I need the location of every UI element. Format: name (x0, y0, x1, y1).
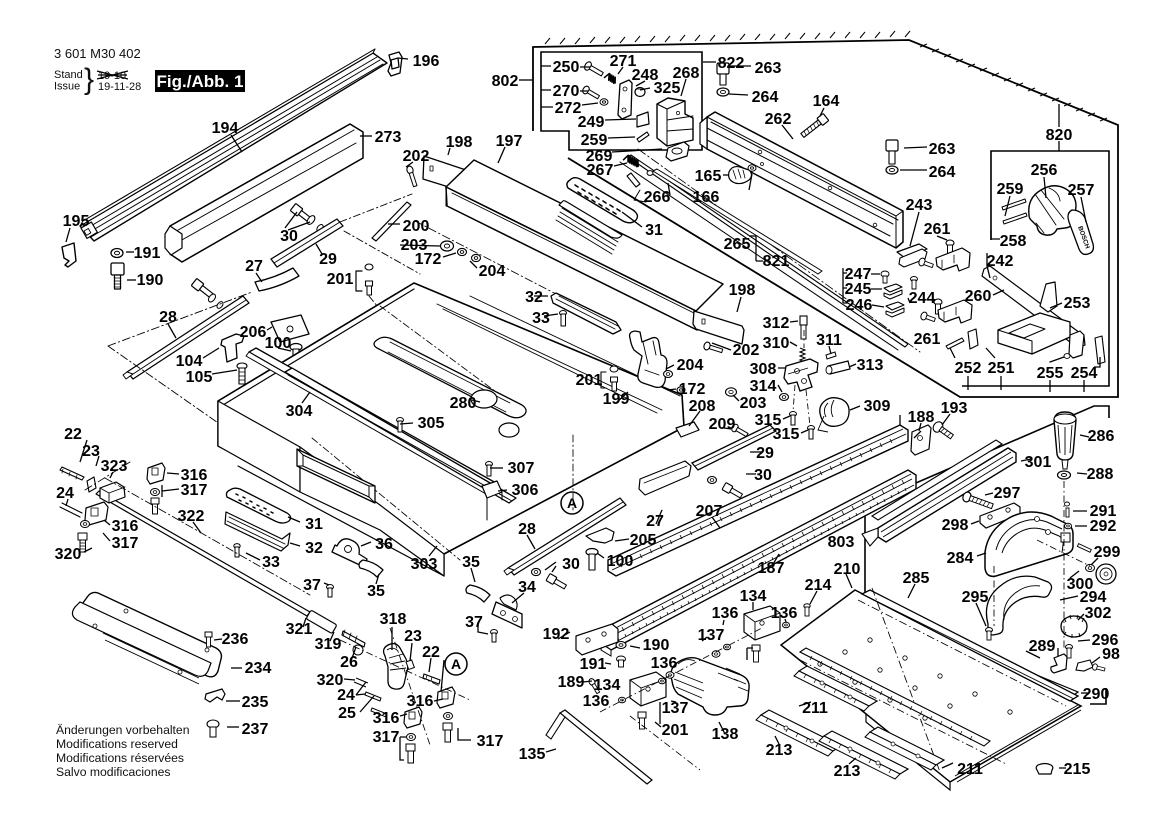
svg-text:302: 302 (1085, 605, 1112, 622)
svg-text:311: 311 (816, 332, 842, 349)
svg-text:29: 29 (756, 445, 774, 462)
svg-text:243: 243 (906, 197, 933, 214)
svg-text:191: 191 (134, 245, 161, 262)
svg-text:134: 134 (740, 588, 767, 605)
svg-text:138: 138 (712, 726, 739, 743)
svg-text:28: 28 (159, 309, 177, 326)
svg-text:19-11-28: 19-11-28 (98, 81, 141, 93)
svg-text:189: 189 (558, 674, 585, 691)
svg-text:22: 22 (422, 644, 440, 661)
svg-text:286: 286 (1088, 428, 1115, 445)
svg-text:267: 267 (587, 162, 614, 179)
svg-text:820: 820 (1046, 127, 1073, 144)
svg-text:194: 194 (212, 120, 239, 137)
svg-text:136: 136 (771, 605, 798, 622)
svg-text:208: 208 (689, 398, 716, 415)
svg-text:284: 284 (947, 550, 974, 567)
svg-text:202: 202 (733, 342, 760, 359)
svg-text:295: 295 (962, 589, 989, 606)
svg-text:192: 192 (543, 626, 570, 643)
svg-text:213: 213 (834, 763, 861, 780)
svg-text:255: 255 (1037, 365, 1064, 382)
svg-text:325: 325 (654, 80, 681, 97)
svg-text:32: 32 (525, 289, 543, 306)
svg-text:A: A (567, 495, 577, 511)
svg-text:37: 37 (465, 614, 483, 631)
svg-text:265: 265 (724, 236, 751, 253)
svg-text:Salvo modificaciones: Salvo modificaciones (56, 765, 170, 779)
svg-text:31: 31 (305, 516, 323, 533)
svg-text:98: 98 (1102, 646, 1120, 663)
svg-text:261: 261 (924, 221, 951, 238)
svg-text:203: 203 (740, 395, 767, 412)
svg-text:309: 309 (864, 398, 891, 415)
svg-text:204: 204 (677, 357, 704, 374)
svg-text:316: 316 (373, 710, 400, 727)
svg-text:166: 166 (693, 189, 720, 206)
svg-text:288: 288 (1087, 466, 1114, 483)
svg-text:250: 250 (553, 59, 580, 76)
svg-text:206: 206 (240, 324, 267, 341)
svg-text:Änderungen vorbehalten: Änderungen vorbehalten (56, 723, 190, 737)
svg-text:172: 172 (679, 381, 706, 398)
svg-text:201: 201 (662, 722, 689, 739)
svg-text:260: 260 (965, 288, 992, 305)
svg-text:197: 197 (496, 133, 523, 150)
svg-text:323: 323 (101, 458, 128, 475)
svg-text:317: 317 (477, 733, 504, 750)
svg-text:105: 105 (186, 369, 213, 386)
svg-text:298: 298 (942, 517, 969, 534)
svg-text:30: 30 (754, 467, 772, 484)
svg-text:198: 198 (446, 134, 473, 151)
svg-text:205: 205 (630, 532, 657, 549)
svg-text:190: 190 (643, 637, 670, 654)
svg-text:318: 318 (380, 611, 407, 628)
svg-text:803: 803 (828, 534, 855, 551)
svg-text:A: A (451, 656, 461, 672)
svg-text:136: 136 (651, 655, 678, 672)
svg-text:294: 294 (1080, 589, 1107, 606)
svg-text:215: 215 (1064, 761, 1091, 778)
svg-text:23: 23 (404, 628, 422, 645)
svg-text:249: 249 (578, 114, 605, 131)
svg-text:262: 262 (765, 111, 792, 128)
svg-text:}: } (84, 63, 94, 96)
svg-text:264: 264 (752, 89, 779, 106)
svg-text:100: 100 (265, 335, 292, 352)
svg-text:31: 31 (645, 222, 663, 239)
svg-text:25: 25 (338, 705, 356, 722)
svg-text:195: 195 (63, 213, 90, 230)
svg-text:236: 236 (222, 631, 249, 648)
svg-text:22: 22 (64, 426, 82, 443)
svg-text:30: 30 (562, 556, 580, 573)
svg-text:312: 312 (763, 315, 790, 332)
svg-text:165: 165 (695, 168, 722, 185)
svg-text:310: 310 (763, 335, 790, 352)
svg-text:246: 246 (846, 297, 873, 314)
svg-text:258: 258 (1000, 233, 1027, 250)
svg-text:209: 209 (709, 416, 736, 433)
svg-text:Issue: Issue (54, 81, 80, 93)
svg-text:214: 214 (805, 577, 832, 594)
svg-text:257: 257 (1068, 182, 1095, 199)
svg-text:202: 202 (403, 148, 430, 165)
svg-text:Fig./Abb. 1: Fig./Abb. 1 (157, 72, 244, 91)
svg-text:30: 30 (280, 228, 298, 245)
svg-text:23: 23 (82, 443, 100, 460)
svg-text:210: 210 (834, 561, 861, 578)
svg-text:27: 27 (245, 258, 263, 275)
svg-text:244: 244 (909, 290, 936, 307)
svg-text:27: 27 (646, 513, 664, 530)
svg-text:201: 201 (327, 271, 354, 288)
svg-text:Modifications reserved: Modifications reserved (56, 737, 178, 751)
svg-text:256: 256 (1031, 162, 1058, 179)
svg-text:200: 200 (403, 218, 430, 235)
svg-text:320: 320 (55, 546, 82, 563)
svg-text:322: 322 (178, 508, 205, 525)
svg-text:316: 316 (112, 518, 139, 535)
svg-text:263: 263 (929, 141, 956, 158)
svg-text:137: 137 (698, 627, 725, 644)
svg-text:135: 135 (519, 746, 546, 763)
svg-text:280: 280 (450, 395, 477, 412)
svg-text:321: 321 (286, 621, 313, 638)
svg-text:273: 273 (375, 129, 402, 146)
svg-text:234: 234 (245, 660, 272, 677)
svg-text:290: 290 (1083, 686, 1110, 703)
svg-text:188: 188 (908, 409, 935, 426)
svg-text:301: 301 (1025, 454, 1052, 471)
svg-text:259: 259 (997, 181, 1024, 198)
svg-text:305: 305 (418, 415, 445, 432)
svg-text:303: 303 (411, 556, 438, 573)
svg-text:207: 207 (696, 503, 723, 520)
svg-text:26: 26 (340, 654, 358, 671)
svg-text:136: 136 (583, 693, 610, 710)
svg-text:317: 317 (181, 482, 208, 499)
svg-text:29: 29 (319, 251, 337, 268)
svg-text:299: 299 (1094, 544, 1121, 561)
svg-text:193: 193 (941, 400, 968, 417)
svg-text:304: 304 (286, 403, 313, 420)
svg-text:190: 190 (137, 272, 164, 289)
svg-text:261: 261 (914, 331, 941, 348)
svg-text:822: 822 (718, 55, 745, 72)
svg-text:37: 37 (303, 577, 321, 594)
svg-text:308: 308 (750, 361, 777, 378)
svg-text:315: 315 (773, 426, 800, 443)
svg-text:316: 316 (407, 693, 434, 710)
svg-text:Stand: Stand (54, 69, 83, 81)
svg-text:36: 36 (375, 536, 393, 553)
svg-text:251: 251 (988, 360, 1015, 377)
svg-text:24: 24 (56, 485, 74, 502)
svg-text:285: 285 (903, 570, 930, 587)
svg-text:263: 263 (755, 60, 782, 77)
svg-text:199: 199 (603, 391, 630, 408)
svg-text:317: 317 (373, 729, 400, 746)
svg-text:28: 28 (518, 521, 536, 538)
svg-text:313: 313 (857, 357, 884, 374)
svg-text:259: 259 (581, 132, 608, 149)
svg-text:187: 187 (758, 560, 785, 577)
svg-text:211: 211 (802, 700, 828, 717)
svg-text:242: 242 (987, 253, 1014, 270)
svg-text:211: 211 (957, 761, 983, 778)
svg-text:104: 104 (176, 353, 203, 370)
svg-text:196: 196 (413, 53, 440, 70)
svg-text:319: 319 (315, 636, 342, 653)
svg-text:237: 237 (242, 721, 269, 738)
svg-text:317: 317 (112, 535, 139, 552)
svg-text:270: 270 (553, 83, 580, 100)
svg-text:164: 164 (813, 93, 840, 110)
svg-text:191: 191 (580, 656, 607, 673)
svg-text:134: 134 (594, 677, 621, 694)
svg-text:32: 32 (305, 540, 323, 557)
svg-text:Modifications réservées: Modifications réservées (56, 751, 184, 765)
svg-text:289: 289 (1029, 638, 1056, 655)
svg-text:235: 235 (242, 694, 269, 711)
svg-text:297: 297 (994, 485, 1021, 502)
svg-text:204: 204 (479, 263, 506, 280)
svg-text:33: 33 (262, 554, 280, 571)
svg-text:821: 821 (763, 253, 790, 270)
svg-text:253: 253 (1064, 295, 1091, 312)
svg-text:266: 266 (644, 189, 671, 206)
svg-text:198: 198 (729, 282, 756, 299)
svg-text:35: 35 (367, 583, 385, 600)
svg-text:34: 34 (518, 579, 536, 596)
svg-text:201: 201 (576, 372, 603, 389)
svg-text:264: 264 (929, 164, 956, 181)
svg-text:100: 100 (607, 553, 634, 570)
svg-text:292: 292 (1090, 518, 1117, 535)
svg-text:314: 314 (750, 378, 777, 395)
svg-text:33: 33 (532, 310, 550, 327)
svg-text:172: 172 (415, 251, 442, 268)
svg-text:802: 802 (492, 73, 519, 90)
svg-text:3 601 M30 402: 3 601 M30 402 (54, 46, 141, 61)
svg-text:35: 35 (462, 554, 480, 571)
svg-text:254: 254 (1071, 365, 1098, 382)
svg-text:306: 306 (512, 482, 539, 499)
svg-text:213: 213 (766, 742, 793, 759)
svg-text:252: 252 (955, 360, 982, 377)
svg-text:24: 24 (337, 687, 355, 704)
svg-text:307: 307 (508, 460, 535, 477)
svg-text:137: 137 (662, 700, 689, 717)
svg-text:245: 245 (845, 281, 872, 298)
svg-text:136: 136 (712, 605, 739, 622)
